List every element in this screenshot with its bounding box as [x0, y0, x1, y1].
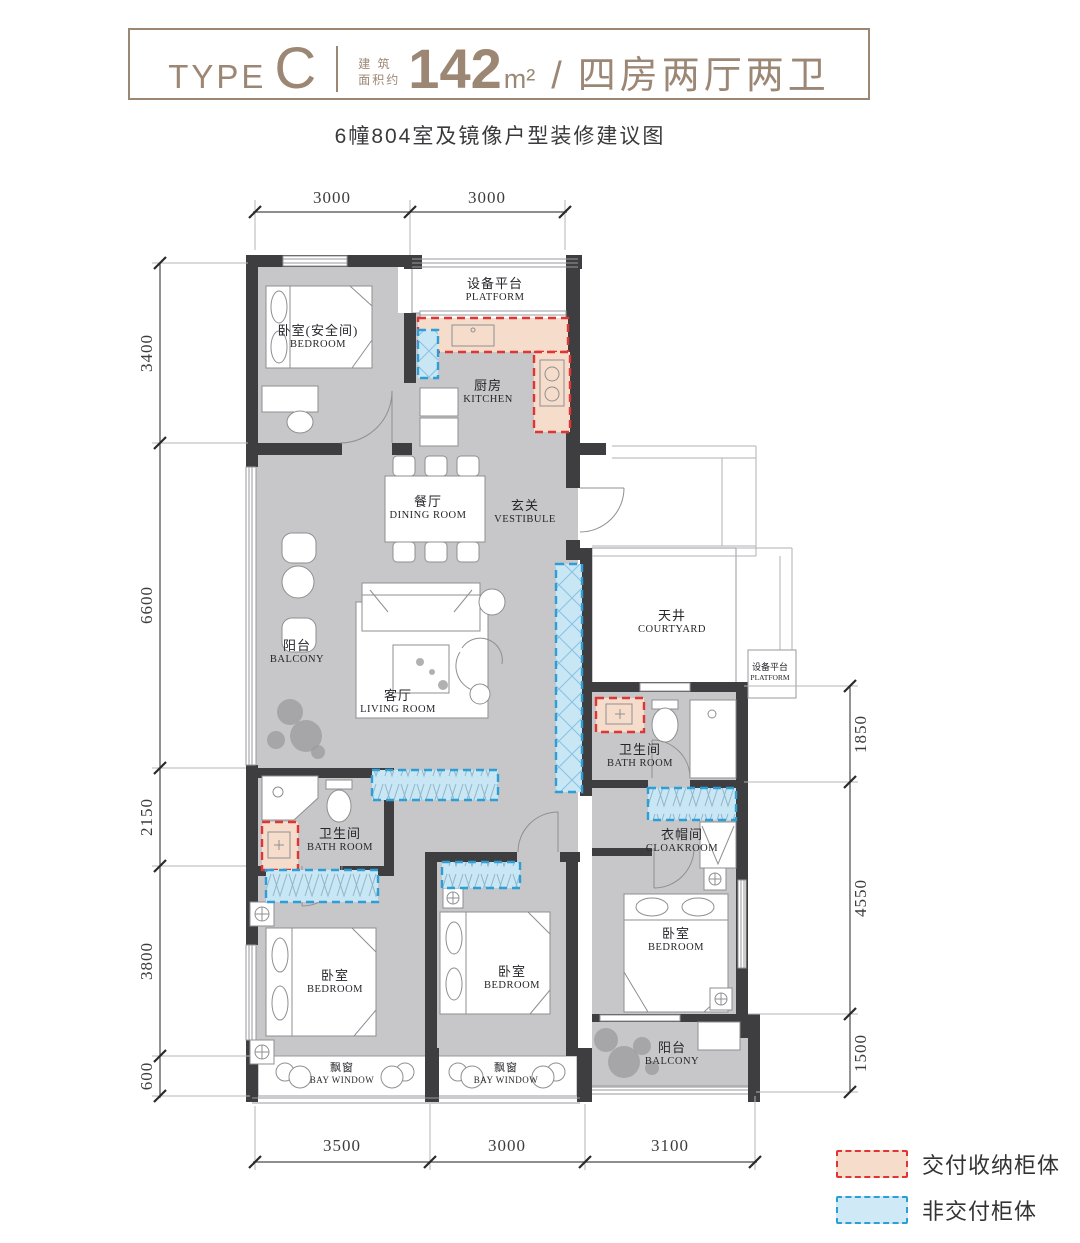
room-label-courtyard: 天井 COURTYARD	[638, 608, 706, 636]
room-label-bay-window-middle-cn: 飘窗	[474, 1062, 538, 1075]
dim-bottom-2: 3000	[488, 1136, 526, 1156]
room-label-bay-window-left-cn: 飘窗	[310, 1062, 374, 1075]
room-label-living-room-en: LIVING ROOM	[360, 704, 436, 717]
floor-plan-drawing	[0, 0, 1080, 1243]
legend-swatch-non-delivered	[836, 1196, 908, 1224]
room-label-cloakroom-en: CLOAKROOM	[646, 843, 718, 856]
room-label-living-room: 客厅 LIVING ROOM	[360, 688, 436, 716]
room-label-balcony-left-cn: 阳台	[270, 638, 324, 654]
dim-bottom-3: 3100	[651, 1136, 689, 1156]
room-label-courtyard-en: COURTYARD	[638, 624, 706, 637]
room-label-bathroom-right-cn: 卫生间	[607, 742, 673, 758]
room-label-bedroom-left-cn: 卧室	[307, 968, 363, 984]
room-label-balcony-bottom-right-cn: 阳台	[645, 1040, 699, 1056]
room-label-bedroom-left-en: BEDROOM	[307, 984, 363, 997]
legend-label-non-delivered: 非交付柜体	[922, 1194, 1037, 1226]
legend-swatch-delivered	[836, 1150, 908, 1178]
room-label-vestibule-en: VESTIBULE	[494, 514, 556, 527]
room-label-bedroom-middle-cn: 卧室	[484, 964, 540, 980]
room-label-platform-right-en: PLATFORM	[750, 673, 789, 682]
room-label-dining-room-cn: 餐厅	[390, 494, 467, 510]
room-label-bedroom-right-en: BEDROOM	[648, 942, 704, 955]
room-label-platform-top-cn: 设备平台	[466, 276, 525, 292]
room-label-bedroom-middle: 卧室 BEDROOM	[484, 964, 540, 992]
room-label-bedroom-middle-en: BEDROOM	[484, 980, 540, 993]
room-label-bay-window-middle: 飘窗 BAY WINDOW	[474, 1062, 538, 1086]
room-label-bathroom-right: 卫生间 BATH ROOM	[607, 742, 673, 770]
room-label-kitchen-cn: 厨房	[463, 378, 513, 394]
room-label-bathroom-left-cn: 卫生间	[307, 826, 373, 842]
room-label-cloakroom-cn: 衣帽间	[646, 827, 718, 843]
legend-label-delivered: 交付收纳柜体	[922, 1148, 1060, 1180]
room-label-platform-top: 设备平台 PLATFORM	[466, 276, 525, 304]
dim-left-2: 6600	[137, 586, 157, 624]
dim-right-3: 1500	[851, 1034, 871, 1072]
room-label-balcony-left-en: BALCONY	[270, 654, 324, 667]
room-label-kitchen-en: KITCHEN	[463, 394, 513, 407]
dim-left-1: 3400	[137, 334, 157, 372]
room-label-bedroom-left: 卧室 BEDROOM	[307, 968, 363, 996]
legend: 交付收纳柜体 非交付柜体	[836, 1148, 1060, 1226]
room-label-kitchen: 厨房 KITCHEN	[463, 378, 513, 406]
legend-item-delivered: 交付收纳柜体	[836, 1148, 1060, 1180]
room-label-bathroom-left: 卫生间 BATH ROOM	[307, 826, 373, 854]
room-label-cloakroom: 衣帽间 CLOAKROOM	[646, 827, 718, 855]
room-label-bedroom-safe: 卧室(安全间) BEDROOM	[278, 323, 359, 351]
dim-left-3: 2150	[137, 798, 157, 836]
room-label-living-room-cn: 客厅	[360, 688, 436, 704]
room-label-vestibule: 玄关 VESTIBULE	[494, 498, 556, 526]
room-label-bedroom-safe-en: BEDROOM	[278, 339, 359, 352]
room-label-bathroom-left-en: BATH ROOM	[307, 842, 373, 855]
dim-left-5: 600	[137, 1062, 157, 1091]
room-label-bedroom-safe-cn: 卧室(安全间)	[278, 323, 359, 339]
room-label-bedroom-right: 卧室 BEDROOM	[648, 926, 704, 954]
room-label-bay-window-left-en: BAY WINDOW	[310, 1075, 374, 1086]
room-label-dining-room-en: DINING ROOM	[390, 510, 467, 523]
floor-plan-page: TYPE C 建 筑 面积约 142 m² / 四房两厅两卫 6幢804室及镜像…	[0, 0, 1080, 1243]
dim-bottom-1: 3500	[323, 1136, 361, 1156]
room-label-bay-window-middle-en: BAY WINDOW	[474, 1075, 538, 1086]
legend-item-non-delivered: 非交付柜体	[836, 1194, 1060, 1226]
room-label-bedroom-right-cn: 卧室	[648, 926, 704, 942]
room-label-bay-window-left: 飘窗 BAY WINDOW	[310, 1062, 374, 1086]
room-label-vestibule-cn: 玄关	[494, 498, 556, 514]
dim-right-1: 1850	[851, 715, 871, 753]
room-label-balcony-left: 阳台 BALCONY	[270, 638, 324, 666]
room-label-balcony-bottom-right: 阳台 BALCONY	[645, 1040, 699, 1068]
room-label-courtyard-cn: 天井	[638, 608, 706, 624]
dim-top-2: 3000	[468, 188, 506, 208]
room-label-balcony-bottom-right-en: BALCONY	[645, 1056, 699, 1069]
dim-right-2: 4550	[851, 879, 871, 917]
room-label-bathroom-right-en: BATH ROOM	[607, 758, 673, 771]
dim-left-4: 3800	[137, 942, 157, 980]
room-label-platform-top-en: PLATFORM	[466, 292, 525, 305]
room-label-platform-right-cn: 设备平台	[750, 662, 789, 673]
room-label-dining-room: 餐厅 DINING ROOM	[390, 494, 467, 522]
dim-top-1: 3000	[313, 188, 351, 208]
room-label-platform-right: 设备平台 PLATFORM	[750, 662, 789, 682]
